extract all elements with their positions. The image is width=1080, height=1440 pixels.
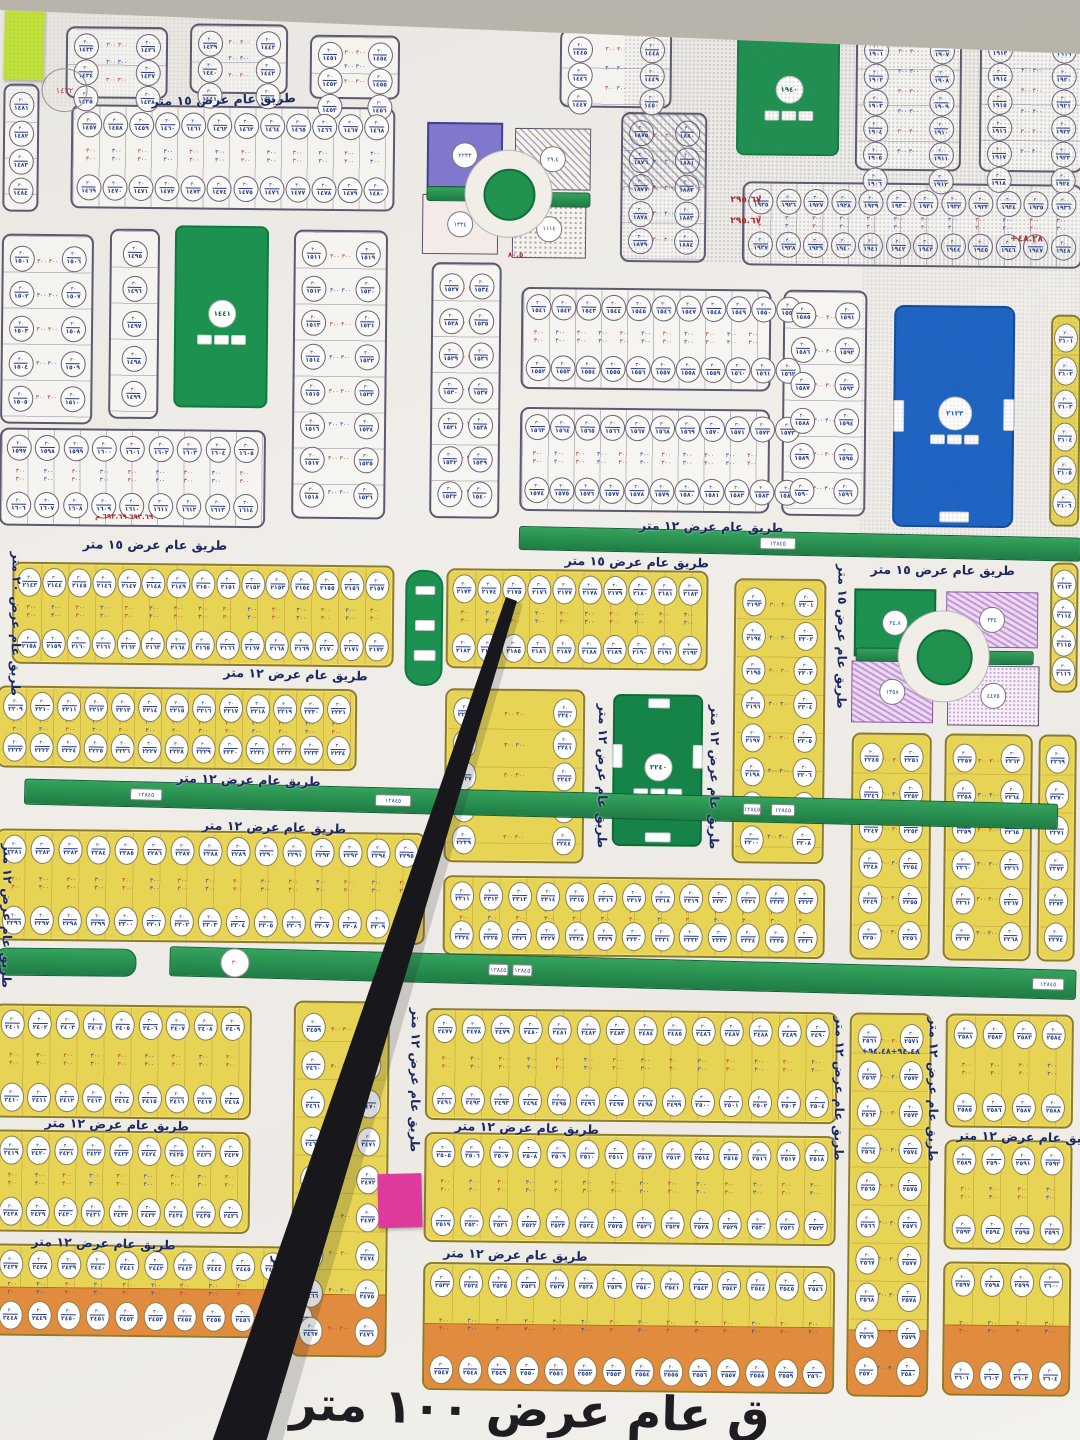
plot-marker: ٣٠١٥٥٠ xyxy=(751,296,776,322)
plot-marker: ٣٠١٥٢٨ xyxy=(439,308,464,334)
plot-marker: ٣٠٢٥٧٥ xyxy=(898,1172,922,1201)
park-label-chip xyxy=(231,335,246,345)
plot-marker: ٣٠٢٥٤٥ xyxy=(775,1271,799,1300)
plot-marker: ٣٠٢١٤٦ xyxy=(92,568,116,597)
plot-marker: ٣٠١٩١٣ xyxy=(987,37,1012,63)
yellow-plot-block: ٣٠٢٤٥٩٣٠٢٤٦٠٣٠٢٤٦١٣٠٢٤٦٢٣٠٢٤٦٣٣٠٢٤٦٤٣٠٢٤… xyxy=(290,1001,390,1358)
plot-marker: ٣٠٢٥١١ xyxy=(604,1139,628,1168)
plot-marker: ٣٠٢٥٧٦ xyxy=(898,1209,922,1238)
plot-marker: ٣٠٢١٨٠ xyxy=(628,576,652,605)
plot-marker: ٣٠٢٤٠٥ xyxy=(111,1010,135,1039)
plot-column: ٣٠١٥١٩٣٠١٥٢٠٣٠١٥٢١٣٠١٥٢٢٣٠١٥٢٣٣٠١٥٢٤٣٠١٥… xyxy=(350,237,383,512)
plot-marker: ٣٠٢٢٧٢ xyxy=(1044,851,1068,880)
plot-marker: ٣٠١٩٠٩ xyxy=(929,90,954,116)
plot-marker: ٣٠١٨٨٤ xyxy=(673,229,698,255)
park-number-chip: ٢٢٤٠ xyxy=(644,753,672,781)
plot-marker: ٣٠٢٤٧٩ xyxy=(490,1014,514,1043)
dimension-column: ٣٠٠ ٣٠٠٣٠٠ ٣٠٠٣٠٠ ٣٠٠٣٠٠ ٣٠٠٣٠٠ ٣٠٠٣٠٠ ٣… xyxy=(817,300,831,506)
dimension-row: ٣٠٠ ٣٠٠٣٠٠ ٣٠٠٣٠٠ ٣٠٠٣٠٠ ٣٠٠٣٠٠ ٣٠٠٣٠٠ ٣… xyxy=(0,1280,314,1301)
plot-marker: ٣٠٢٢١٥ xyxy=(165,693,189,722)
plot-row: ٣٠٢٥٨٩٣٠٢٥٩٠٣٠٢٥٩١٣٠٢٥٩٢ xyxy=(949,1143,1067,1176)
plot-marker: ٣٠١٩١٠ xyxy=(929,116,954,142)
plot-row: ٣٠٢٢٨١٣٠٢٢٨٢٣٠٢٢٨٣٣٠٢٢٨٤٣٠٢٢٨٥٣٠٢٢٨٦٣٠٢٢… xyxy=(0,833,420,869)
plot-marker: ٣٠٢٢٢٧ xyxy=(138,733,162,762)
plot-marker: ٣٠١٥٧٤ xyxy=(524,477,549,503)
plot-marker: ٣٠٢٣١٧ xyxy=(622,883,646,912)
park-label-chip xyxy=(963,435,978,445)
plot-column: ٣٠١٤٤٢٣٠١٤٤٣٣٠١٤٤٤ xyxy=(253,31,284,87)
plot-marker: ٣٠٢٢٩٢ xyxy=(310,837,334,866)
plot-marker: ٣٠١٤٩٦ xyxy=(122,276,147,302)
plot-marker: ٣٠١٤٤٨ xyxy=(639,37,664,63)
plot-marker: ٣٠٢٦٠٤ xyxy=(1038,1361,1062,1390)
plot-marker: ٣٠١٤٧٠ xyxy=(102,175,127,201)
plot-marker: ٣٠١٩١١ xyxy=(928,142,953,168)
plot-marker: ٣٠٢٢٦٨ xyxy=(999,922,1023,951)
plot-column: ٣٠٢٢٥١٣٠٢٢٥٢٣٠٢٢٥٣٣٠٢٢٥٤٣٠٢٢٥٥٣٠٢٢٥٦ xyxy=(895,740,927,953)
plot-marker: ٣٠٢٢٥٦ xyxy=(898,921,922,950)
survey-stamp-circle: ١٤٣٢ xyxy=(41,68,87,112)
plot-marker: ٣٠١٥٤٣ xyxy=(576,295,601,321)
plot-marker: ٣٠٢٤٨١ xyxy=(548,1015,572,1044)
plot-marker: ٣٠٢٢٤٤ xyxy=(552,826,576,855)
plot-marker: ٣٠٢٤١١ xyxy=(27,1082,51,1111)
plot-marker: ٣٠٢٣٠٩ xyxy=(366,909,390,938)
plot-row: ٣٠٢٤٤٨٣٠٢٤٤٩٣٠٢٤٥٠٣٠٢٤٥١٣٠٢٤٥٢٣٠٢٤٥٣٣٠٢٤… xyxy=(0,1298,316,1333)
plot-marker: ٣٠٢٤٣٢ xyxy=(109,1197,133,1226)
plot-marker: ٣٠٢٣١٣ xyxy=(508,881,532,910)
plot-marker: ٣٠١٤٦٥ xyxy=(286,113,311,139)
plot-marker: ٣٠٢٣٠٦ xyxy=(282,908,306,937)
dimension-column: ٣٠٠ ٣٠٠٣٠٠ ٣٠٠٣٠٠ ٣٠٠٣٠٠ ٣٠٠٣٠٠ ٣٠٠٣٠٠ ٣… xyxy=(979,744,997,951)
plot-marker: ٣٠٢٥٠٧ xyxy=(489,1138,513,1167)
plot-marker: ٣٠٢٤٥٦ xyxy=(231,1302,255,1331)
plot-marker: ٣٠٢١٧٠ xyxy=(315,631,339,660)
plot-column: ٣٠١٤٨١٣٠١٤٨٢٣٠١٤٨٣٣٠١٤٨٤ xyxy=(5,91,36,205)
plot-marker: ٣٠٢٤٠٢ xyxy=(28,1009,52,1038)
plot-marker: ٣٠١٤٣٣ xyxy=(73,33,98,59)
plot-marker: ٣٠٢٥٥٠ xyxy=(515,1355,539,1384)
plot-marker: ٣٠٢١٧٣ xyxy=(452,574,476,603)
plot-marker: ٣٠١٤٧٤ xyxy=(207,176,232,202)
plot-marker: ٣٠٢١٩١ xyxy=(653,635,677,664)
park-label-chip xyxy=(214,335,229,345)
plot-marker: ٣٠١٩٤٠ xyxy=(831,232,856,258)
plot-marker: ٣٠٢٥٨٨ xyxy=(1041,1093,1065,1122)
plot-marker: ٣٠٢١٧٥ xyxy=(502,574,526,603)
white-plot-block: ٣٠١٩٠١٣٠١٩٠٢٣٠١٩٠٣٣٠١٩٠٤٣٠١٩٠٥٣٠١٩٠٦٣٠٠ … xyxy=(855,30,962,171)
plot-marker: ٣٠٢١٠٢ xyxy=(1054,357,1078,386)
plot-marker: ٣٠١٤٥٢ xyxy=(317,68,342,94)
plot-marker: ٣٠٢٤٨٢ xyxy=(576,1015,600,1044)
plot-marker: ٣٠١٨٧٩ xyxy=(627,228,652,254)
plot-marker: ٣٠١٩٣٢ xyxy=(941,190,966,216)
plot-marker: ٣٠١٩٢٢ xyxy=(1051,115,1076,141)
dimension-row: ٣٠٠ ٣٠٠٣٠٠ ٣٠٠٣٠٠ ٣٠٠٣٠٠ ٣٠٠٣٠٠ ٣٠٠٣٠٠ ٣… xyxy=(528,323,764,353)
yellow-plot-block: ٣٠٢٤٠١٣٠٢٤٠٢٣٠٢٤٠٣٣٠٢٤٠٤٣٠٢٤٠٥٣٠٢٤٠٦٣٠٢٤… xyxy=(0,1003,252,1120)
plot-marker: ٣٠٢٥٢٠ xyxy=(460,1207,484,1236)
plot-marker: ٣٠٢٣٣٦ xyxy=(793,923,817,952)
plot-row: ٣٠٢٤٩١٣٠٢٤٩٢٣٠٢٤٩٣٣٠٢٤٩٤٣٠٢٤٩٥٣٠٢٤٩٦٣٠٢٤… xyxy=(430,1083,832,1119)
plot-marker: ٣٠٢٥٦٩ xyxy=(854,1319,878,1348)
plot-marker: ٣٠٢١٥٠ xyxy=(191,569,215,598)
plot-marker: ٣٠١٥٢٦ xyxy=(353,482,378,508)
plot-marker: ٣٠١٨٧٧ xyxy=(628,174,653,200)
plot-marker: ٣٠١٥٨١ xyxy=(699,479,724,505)
plot-marker: ٣٠١٩٣٧ xyxy=(748,231,773,257)
plot-marker: ٣٠٢٢١١ xyxy=(57,692,81,721)
plot-marker: ٣٠٢٥٥٨ xyxy=(745,1358,769,1387)
plot-marker: ٣٠٢٥٥٢ xyxy=(573,1356,597,1385)
measurement-note: ٦٩٣.٦٩ ٦٩٣.٦٩ م xyxy=(95,512,153,521)
plot-marker: ٣٠٢٤٠٨ xyxy=(193,1011,217,1040)
dimension-row: ٣٠٠ ٣٠٠٣٠٠ ٣٠٠٣٠٠ ٣٠٠٣٠٠ ٣٠٠ xyxy=(951,1175,1065,1212)
plot-marker: ٣٠١٥٠٨ xyxy=(60,316,85,342)
plot-marker: ٣٠١٤٤٠ xyxy=(197,57,222,83)
plot-marker: ٣٠٢١٨١ xyxy=(653,576,677,605)
plot-marker: ٣٠١٤٣٩ xyxy=(197,31,222,57)
plot-marker: ٣٠١٩٢٠ xyxy=(1051,63,1076,89)
plot-marker: ٣٠١٥٦٣ xyxy=(525,414,550,440)
park-label-chip xyxy=(798,111,813,121)
yellow-plot-block: ٣٠٢٥٣٣٣٠٢٥٣٤٣٠٢٥٣٥٣٠٢٥٣٦٣٠٢٥٣٧٣٠٢٥٣٨٣٠٢٥… xyxy=(422,1262,835,1394)
plot-marker: ٣٠٢١٥٥ xyxy=(315,570,339,599)
plot-marker: ٣٠٢٢٩٠ xyxy=(254,837,278,866)
roundabout-island xyxy=(483,169,536,222)
plot-marker: ٣٠٢١١٥ xyxy=(1052,628,1076,657)
top-tab xyxy=(648,698,670,708)
plot-marker: ٣٠٢٥٦٧ xyxy=(855,1245,879,1274)
plot-marker: ٣٠٢١٥١ xyxy=(216,569,240,598)
plot-marker: ٣٠٢٣١١ xyxy=(450,881,474,910)
plot-marker: ٣٠٢٣٣٠ xyxy=(622,922,646,951)
white-plot-block: ٣٠١٩٢٥٣٠١٩٢٦٣٠١٩٢٧٣٠١٩٢٨٣٠١٩٢٩٣٠١٩٣٠٣٠١٩… xyxy=(742,181,1080,269)
plot-marker: ٣٠٢٥٢٦ xyxy=(632,1209,656,1238)
plot-marker: ٣٠٢٢١٦ xyxy=(192,693,216,722)
plot-marker: ٣٠٢٤٣٤ xyxy=(164,1198,188,1227)
corner-plot-chip: ٣٣٤ xyxy=(979,607,1005,633)
plot-marker: ٣٠١٥٧٦ xyxy=(574,477,599,503)
white-plot-block: ٣٠١٤٥١٣٠١٤٥٢٣٠١٤٥٣٣٠٠ ٣٠٠٣٠٠ ٣٠٠٣٠٠ ٣٠٠٣… xyxy=(309,35,400,100)
plot-marker: ٣٠١٩٤١ xyxy=(858,232,883,258)
plot-marker: ٣٠١٤٩٧ xyxy=(121,311,146,337)
plot-marker: ٣٠١٦٠٨ xyxy=(63,492,88,518)
plot-marker: ٣٠٢٣٣٣ xyxy=(707,922,731,951)
plot-marker: ٣٠٢٤١٧ xyxy=(192,1084,216,1113)
plot-marker: ٣٠٢٤٨٠ xyxy=(519,1014,543,1043)
plot-marker: ٣٠٢٥٣٩ xyxy=(602,1269,626,1298)
plot-marker: ٣٠٢٤٢٧ xyxy=(219,1137,243,1166)
plot-marker: ٣٠٢٢٥٤ xyxy=(898,850,922,879)
plot-marker: ٣٠٢٥٦٠ xyxy=(802,1358,826,1387)
plot-marker: ٣٠١٦١٢ xyxy=(176,493,201,519)
plot-row: ٣٠٢٥٩٧٣٠٢٥٩٨٣٠٢٥٩٩٣٠٢٦٠٠ xyxy=(948,1265,1066,1298)
plot-marker: ٣٠١٥٦٩ xyxy=(675,416,700,442)
plot-marker: ٣٠١٥٤٧ xyxy=(676,296,701,322)
plot-marker: ٣٠٢١٧٨ xyxy=(578,575,602,604)
plot-marker: ٣٠٢٥٧٨ xyxy=(897,1283,921,1312)
corner-plot-chip: ٤٤٧٥ xyxy=(980,683,1006,709)
plot-marker: ٣٠٢١٤٧ xyxy=(117,568,141,597)
plot-marker: ٣٠١٥١٤ xyxy=(300,344,325,370)
plot-column: ٣٠١٥٩١٣٠١٥٩٢٣٠١٥٩٣٣٠١٥٩٤٣٠١٥٩٥٣٠١٥٩٦ xyxy=(830,297,862,509)
plot-marker: ٣٠١٥٩٢ xyxy=(834,337,859,363)
plot-marker: ٣٠٢٦٠٠ xyxy=(1039,1268,1063,1297)
plot-marker: ٣٠٢٢٥١ xyxy=(899,743,923,772)
white-plot-block: ٣٠١٤٤٥٣٠١٤٤٦٣٠١٤٤٧٣٠٠ ٣٠٠٣٠٠ ٣٠٠٣٠٠ ٣٠٠٣… xyxy=(559,29,672,108)
plot-marker: ٣٠٢٤٩٥ xyxy=(547,1086,571,1115)
plot-marker: ٣٠١٩٤٣ xyxy=(913,233,938,259)
plot-marker: ٣٠٢٥٨٤ xyxy=(1042,1020,1066,1049)
plot-marker: ٣٠١٨٧٦ xyxy=(628,147,653,173)
bottom-tab xyxy=(645,832,671,842)
plot-marker: ٣٠٢٢٥٥ xyxy=(898,885,922,914)
plot-marker: ٣٠٢٢٤٠ xyxy=(553,698,577,727)
plot-marker: ٣٠١٥٢٧ xyxy=(439,273,464,299)
plot-marker: ٣٠٢٤٦٦ xyxy=(299,1278,323,1307)
plot-marker: ٣٠٢٢٦١ xyxy=(951,886,975,915)
plot-marker: ٣٠١٤٥٥ xyxy=(367,68,392,94)
plot-marker: ٣٠١٦٠٤ xyxy=(205,437,230,463)
plot-marker: ٣٠١٥٦٠ xyxy=(726,357,751,383)
plot-marker: ٣٠٢٤٢٠ xyxy=(27,1135,51,1164)
corner-plot-chip: ١٣٥٨ xyxy=(879,679,905,705)
plot-column: ٣٠٢٢٥٧٣٠٢٢٥٨٣٠٢٢٥٩٣٠٢٢٦٠٣٠٢٢٦١٣٠٢٢٦٢ xyxy=(948,740,980,953)
plot-column: ٣٠١٥٠٦٣٠١٥٠٧٣٠١٥٠٨٣٠١٥٠٩٣٠١٥١٠ xyxy=(57,241,89,417)
plot-marker: ٣٠١٩٠١ xyxy=(863,37,888,63)
plot-marker: ٣٠١٤٧٧ xyxy=(285,176,310,202)
plot-marker: ٣٠٢٤٦٨ xyxy=(358,1013,382,1042)
bottom-tab xyxy=(939,511,969,522)
plot-marker: ٣٠٢٢٣٣ xyxy=(299,735,323,764)
plot-marker: ٣٠١٥٦٦ xyxy=(600,415,625,441)
plot-marker: ٣٠٢١٥٩ xyxy=(42,628,66,657)
plot-marker: ٣٠٢٤٨٨ xyxy=(749,1017,773,1046)
plot-marker: ٣٠٢٥٥٥ xyxy=(659,1357,683,1386)
plot-marker: ٣٠١٦٠٣ xyxy=(177,436,202,462)
plot-marker: ٣٠٢١٧٤ xyxy=(477,574,501,603)
plot-marker: ٣٠٢٤٨٤ xyxy=(634,1016,658,1045)
map-content: ق عام عرض ١٠٠ متر ٣٠١٤٣٣٣٠١٤٣٤٣٠١٤٣٥٣٠٠ … xyxy=(0,0,1080,1440)
dimension-row: ٣٠٠ ٣٠٠٣٠٠ ٣٠٠٣٠٠ ٣٠٠٣٠٠ ٣٠٠٣٠٠ ٣٠٠٣٠٠ ٣… xyxy=(432,1044,830,1086)
plot-marker: ٣٠١٥٨٢ xyxy=(724,479,749,505)
plot-marker: ٣٠١٥٣٠ xyxy=(438,377,463,403)
plot-marker: ٣٠١٥٨٨ xyxy=(790,407,815,433)
plot-marker: ٣٠٢٥٦٢ xyxy=(857,1060,881,1089)
plot-marker: ٣٠٢٢٦٩ xyxy=(1045,745,1069,774)
plot-marker: ٣٠٢١٦٣ xyxy=(141,629,165,658)
dimension-row: ٣٠٠ ٣٠٠٣٠٠ ٣٠٠٣٠٠ ٣٠٠٣٠٠ ٣٠٠٣٠٠ ٣٠٠٣٠٠ ٣… xyxy=(0,1166,243,1197)
plot-marker: ٣٠٢٣٢٤ xyxy=(450,920,474,949)
plot-marker: ٣٠١٤٧٥ xyxy=(233,176,258,202)
road-label-vertical: طريق عام عرض ١٢ متر xyxy=(707,705,724,849)
plot-marker: ٣٠٢١٦٧ xyxy=(240,631,264,660)
plot-marker: ٣٠٢٥٧٣ xyxy=(899,1098,923,1127)
plot-marker: ٣٠٢٤٠٤ xyxy=(83,1010,107,1039)
plot-marker: ٣٠٢٢٠٤ xyxy=(793,690,817,719)
plot-marker: ٣٠٢٤٧٣ xyxy=(356,1203,380,1232)
plot-marker: ٣٠١٨٧٥ xyxy=(629,120,654,146)
plot-marker: ٣٠٢٢٧٣ xyxy=(1044,887,1068,916)
plot-marker: ٣٠٢٤٨٩ xyxy=(777,1017,801,1046)
median-label-chip: ١٢٨٤٥ xyxy=(488,964,508,977)
plot-marker: ٣٠١٥٢١ xyxy=(354,310,379,336)
plot-marker: ٣٠٢٥٨٠ xyxy=(896,1357,920,1386)
strip-chip xyxy=(415,620,435,631)
plot-column: ٣٠٢١٠١٣٠٢١٠٢٣٠٢١٠٣٣٠٢١٠٤٣٠٢١٠٥٣٠٢١٠٦ xyxy=(1049,321,1080,519)
plot-marker: ٣٠١٩١٤ xyxy=(987,63,1012,89)
plot-marker: ٣٠١٥٥٢ xyxy=(526,355,551,381)
plot-marker: ٣٠٢٤٩٨ xyxy=(633,1087,657,1116)
plot-marker: ٣٠١٥٩٧ xyxy=(6,435,31,461)
yellow-plot-block: ٣٠٢٥٨٩٣٠٢٥٩٠٣٠٢٥٩١٣٠٢٥٩٢٣٠٠ ٣٠٠٣٠٠ ٣٠٠٣٠… xyxy=(943,1139,1072,1250)
plot-marker: ٣٠٢٢٠٣ xyxy=(793,656,817,685)
plot-marker: ٣٠٢٥٠٥ xyxy=(432,1138,456,1167)
plot-marker: ٣٠٢٢٧٤ xyxy=(1044,922,1068,951)
plot-marker: ٣٠٢٤٥٠ xyxy=(56,1301,80,1330)
plot-column: ٣٠٢٥٧١٣٠٢٥٧٢٣٠٢٥٧٣٣٠٢٥٧٤٣٠٢٥٧٥٣٠٢٥٧٦٣٠٢٥… xyxy=(893,1020,927,1390)
plot-marker: ٣٠١٤٦٩ xyxy=(76,174,101,200)
plot-marker: ٣٠٢٤٧٥ xyxy=(355,1279,379,1308)
plot-marker: ٣٠١٥٨٠ xyxy=(674,479,699,505)
plot-marker: ٣٠٢٥١٢ xyxy=(633,1140,657,1169)
white-plot-block: ٣٠١٥٢٧٣٠١٥٢٨٣٠١٥٢٩٣٠١٥٣٠٣٠١٥٣١٣٠١٥٣٢٣٠١٥… xyxy=(429,262,502,519)
plot-row: ٣٠١٤٦٩٣٠١٤٧٠٣٠١٤٧١٣٠١٤٧٢٣٠١٤٧٣٣٠١٤٧٤٣٠١٤… xyxy=(75,171,389,206)
plot-marker: ٣٠١٤٤٣ xyxy=(255,57,280,83)
plot-marker: ٣٠١٤٦٨ xyxy=(364,114,389,140)
yellow-plot-block: ٣٠٢٢٣٥٣٠٢٢٣٦٣٠٢٢٣٧٣٠٢٢٣٨٣٠٢٢٣٩٣٠٠ ٣٠٠٣٠٠… xyxy=(443,688,585,863)
plot-marker: ٣٠٢٥٤٩ xyxy=(487,1355,511,1384)
plot-marker: ٣٠٢٥٩١ xyxy=(1011,1146,1035,1175)
plot-marker: ٣٠١٥٥٧ xyxy=(651,356,676,382)
road-label-vertical: طريق عام عرض ١٥ متر xyxy=(834,564,851,708)
plot-marker: ٣٠١٩٣٠ xyxy=(886,190,911,216)
plot-marker: ٣٠٢١٠٤ xyxy=(1053,423,1077,452)
plot-marker: ٣٠٢٤٣٧ xyxy=(0,1249,23,1278)
yellow-plot-block: ٣٠٢٣١١٣٠٢٣١٢٣٠٢٣١٣٣٠٢٣١٤٣٠٢٣١٥٣٠٢٣١٦٣٠٢٣… xyxy=(443,875,826,959)
road-label: طريق عام عرض ١٥ متر xyxy=(871,562,1015,579)
strip-chip xyxy=(414,650,436,661)
plot-marker: ٣٠١٥٨٦ xyxy=(790,337,815,363)
plot-marker: ٣٠١٩١٩ xyxy=(1051,37,1076,63)
white-plot-block: ٣٠١٤٨١٣٠١٤٨٢٣٠١٤٨٣٣٠١٤٨٤ xyxy=(2,83,39,211)
measurement-note: ٢٩٥.٦٧ xyxy=(730,216,761,226)
plot-column: ٣٠١٥١١٣٠١٥١٢٣٠١٥١٣٣٠١٥١٤٣٠١٥١٥٣٠١٥١٦٣٠١٥… xyxy=(296,237,329,512)
plot-column: ٣٠١٤٥٤٣٠١٤٥٥٣٠١٤٥٦ xyxy=(365,42,396,92)
plot-marker: ٣٠١٩٠٤ xyxy=(863,115,888,141)
plot-marker: ٣٠٢٤٧٧ xyxy=(433,1014,457,1043)
plot-marker: ٣٠٢٥٧٤ xyxy=(898,1135,922,1164)
plot-marker: ٣٠٢٥٤٨ xyxy=(458,1355,482,1384)
plot-row: ٣٠٢٤١٩٣٠٢٤٢٠٣٠٢٤٢١٣٠٢٤٢٢٣٠٢٤٢٣٣٠٢٤٢٤٣٠٢٤… xyxy=(0,1133,246,1168)
median-label-chip: ١٢٨٤٥ xyxy=(375,794,411,807)
road-label-vertical: طريق عام عرض ١٢ متر xyxy=(595,704,612,848)
road-label-vertical: طريق عام عرض ١٢ متر xyxy=(407,1008,424,1152)
plot-marker: ٣٠٢٢٥٧ xyxy=(952,744,976,773)
plot-marker: ٣٠٢٤٤٣ xyxy=(173,1251,197,1280)
plot-marker: ٣٠٢٣٠٥ xyxy=(254,908,278,937)
plot-marker: ٣٠١٥٢٥ xyxy=(353,448,378,474)
plot-marker: ٣٠١٤٤٢ xyxy=(255,31,280,57)
white-plot-block: ٣٠١٥٦٣٣٠١٥٦٤٣٠١٥٦٥٣٠١٥٦٦٣٠١٥٦٧٣٠١٥٦٨٣٠١٥… xyxy=(519,407,770,514)
median-label-chip: ١٢٨٤٥ xyxy=(1032,978,1064,991)
dimension-column: ٣٠٠ ٣٠٠٣٠٠ ٣٠٠٣٠٠ ٣٠٠٣٠٠ ٣٠٠٣٠٠ ٣٠٠٣٠٠ ٣… xyxy=(891,41,926,161)
plot-row: ٣٠٢١٥٨٣٠٢١٥٩٣٠٢١٦٠٣٠٢١٦١٣٠٢١٦٢٣٠٢١٦٣٣٠٢١… xyxy=(17,627,389,663)
plot-marker: ٣٠١٤٤٩ xyxy=(639,63,664,89)
plot-marker: ٣٠١٥٢٣ xyxy=(354,379,379,405)
plot-marker: ٣٠١٤٦٣ xyxy=(234,113,259,139)
plot-marker: ٣٠٢٥٣٦ xyxy=(516,1268,540,1297)
plot-marker: ٣٠١٥٠٩ xyxy=(60,351,85,377)
plot-marker: ٣٠٢٤٩٣ xyxy=(490,1085,514,1114)
plot-marker: ٣٠٢٥٣١ xyxy=(775,1210,799,1239)
road-label: طريق عام عرض ١٥ متر xyxy=(83,536,227,553)
median-label-chip: ١٢٨٤٥ xyxy=(130,788,162,801)
plot-marker: ٣٠١٤٤٧ xyxy=(567,88,592,114)
plot-row: ٣٠٢٦٠١٣٠٢٦٠٢٣٠٢٦٠٣٣٠٢٦٠٤ xyxy=(947,1358,1065,1391)
plot-marker: ٣٠٢٢٣٥ xyxy=(453,697,477,726)
dimension-row: ٣٠٠ ٣٠٠٣٠٠ ٣٠٠٣٠٠ ٣٠٠٣٠٠ ٣٠٠٣٠٠ ٣٠٠٣٠٠ ٣… xyxy=(19,598,387,630)
plot-marker: ٣٠١٥٧٢ xyxy=(750,416,775,442)
plot-marker: ٣٠٢٤٧٦ xyxy=(354,1317,378,1346)
plot-marker: ٣٠٢٥٣٨ xyxy=(574,1269,598,1298)
plot-row: ٣٠١٥٥٢٣٠١٥٥٣٣٠١٥٥٤٣٠١٥٥٥٣٠١٥٥٦٣٠١٥٥٧٣٠١٥… xyxy=(526,352,766,387)
plot-column: ٣٠٢٢٣٥٣٠٢٢٣٦٣٠٢٢٣٧٣٠٢٢٣٨٣٠٢٢٣٩ xyxy=(449,695,481,855)
plot-marker: ٣٠١٥٧١ xyxy=(725,416,750,442)
yellow-plot-block: ٣٠٢٢٠٩٣٠٢٢١٠٣٠٢٢١١٣٠٢٢١٢٣٠٢٢١٣٣٠٢٢١٤٣٠٢٢… xyxy=(0,685,357,771)
white-plot-block: ٣٠١٥١١٣٠١٥١٢٣٠١٥١٣٣٠١٥١٤٣٠١٥١٥٣٠١٥١٦٣٠١٥… xyxy=(291,230,388,520)
plot-marker: ٣٠٢٢٤٢ xyxy=(552,762,576,791)
plot-marker: ٣٠٢٤٤٤ xyxy=(202,1251,226,1280)
plot-marker: ٣٠٢٣١٢ xyxy=(479,881,503,910)
plot-marker: ٣٠٢٥١٣ xyxy=(661,1140,685,1169)
plot-marker: ٣٠٢٢٣٢ xyxy=(272,735,296,764)
plot-marker: ٣٠٢٤٤٥ xyxy=(231,1251,255,1280)
plot-marker: ٣٠٢٣٢٠ xyxy=(708,883,732,912)
plot-marker: ٣٠٢٥٢٩ xyxy=(718,1210,742,1239)
plot-marker: ٣٠٢٤٣٦ xyxy=(219,1198,243,1227)
plot-marker: ٣٠٢٤٨٧ xyxy=(720,1017,744,1046)
plot-marker: ٣٠٢٥٢١ xyxy=(488,1207,512,1236)
plot-marker: ٣٠٢٢٢٨ xyxy=(165,734,189,763)
plot-marker: ٣٠٢٥٩٥ xyxy=(1010,1215,1034,1244)
plot-marker: ٣٠١٤٧١ xyxy=(128,175,153,201)
plot-marker: ٣٠١٥١٥ xyxy=(300,378,325,404)
road-label-vertical: طريق عام عرض ١٢ متر xyxy=(0,844,16,988)
plot-marker: ٣٠١٤٦٠ xyxy=(155,112,180,138)
plot-marker: ٣٠٢٥٢٥ xyxy=(603,1208,627,1237)
plot-marker: ٣٠١٤٧٦ xyxy=(259,176,284,202)
plot-column: ٣٠١٤٣٦٣٠١٤٣٧٣٠١٤٣٨ xyxy=(133,34,164,92)
plot-marker: ٣٠١٤٥٧ xyxy=(77,111,102,137)
plot-row: ٣٠٢٥٠٥٣٠٢٥٠٦٣٠٢٥٠٧٣٠٢٥٠٨٣٠٢٥٠٩٣٠٢٥١٠٣٠٢٥… xyxy=(429,1136,831,1172)
map-photo: ق عام عرض ١٠٠ متر ٣٠١٤٣٣٣٠١٤٣٤٣٠١٤٣٥٣٠٠ … xyxy=(0,0,1080,1440)
plot-marker: ٣٠٢٥٨٩ xyxy=(952,1145,976,1174)
yellow-plot-block: ٣٠٢١٠١٣٠٢١٠٢٣٠٢١٠٣٣٠٢١٠٤٣٠٢١٠٥٣٠٢١٠٦ xyxy=(1049,314,1080,526)
plot-marker: ٣٠١٩٣٨ xyxy=(776,232,801,258)
plot-marker: ٣٠١٦٠٧ xyxy=(34,492,59,518)
plot-marker: ٣٠٢٤٠١ xyxy=(0,1009,24,1038)
plot-marker: ٣٠١٤٦٧ xyxy=(338,114,363,140)
plot-column: ٣٠١٤٣٩٣٠١٤٤٠٣٠١٤٤١ xyxy=(195,30,226,86)
plot-marker: ٣٠٢٢٤٥ xyxy=(859,743,883,772)
plot-marker: ٣٠١٦٠١ xyxy=(120,436,145,462)
plot-marker: ٣٠١٦٠٥ xyxy=(234,437,259,463)
plot-marker: ٣٠١٤٧٣ xyxy=(181,175,206,201)
plot-marker: ٣٠٢٤٢٣ xyxy=(109,1136,133,1165)
park-plot-green xyxy=(404,570,443,686)
plot-marker: ٣٠٢٤١٤ xyxy=(110,1083,134,1112)
